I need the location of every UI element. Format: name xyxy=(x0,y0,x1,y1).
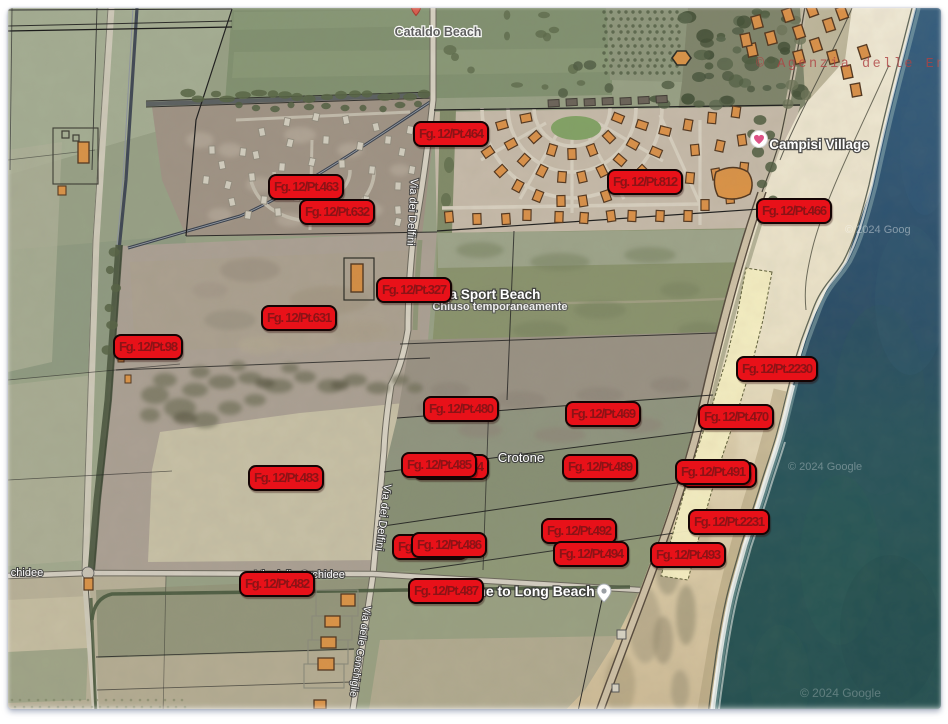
svg-text:Chiuso temporaneamente: Chiuso temporaneamente xyxy=(432,301,567,313)
svg-text:© 2024 Google: © 2024 Google xyxy=(788,461,862,473)
svg-text:Campisi Village: Campisi Village xyxy=(769,137,869,152)
svg-text:Cataldo Beach: Cataldo Beach xyxy=(395,25,482,39)
svg-text:ne to Long Beach: ne to Long Beach xyxy=(477,583,594,599)
svg-text:chidee: chidee xyxy=(11,567,43,579)
svg-text:a Sport Beach: a Sport Beach xyxy=(450,287,541,302)
svg-text:Crotone: Crotone xyxy=(498,450,544,465)
svg-text:© Agenzia delle Entrate: © Agenzia delle Entrate xyxy=(756,57,941,72)
svg-text:© 2024 Google: © 2024 Google xyxy=(800,686,881,700)
svg-text:© 2024 Goog: © 2024 Goog xyxy=(845,224,911,236)
